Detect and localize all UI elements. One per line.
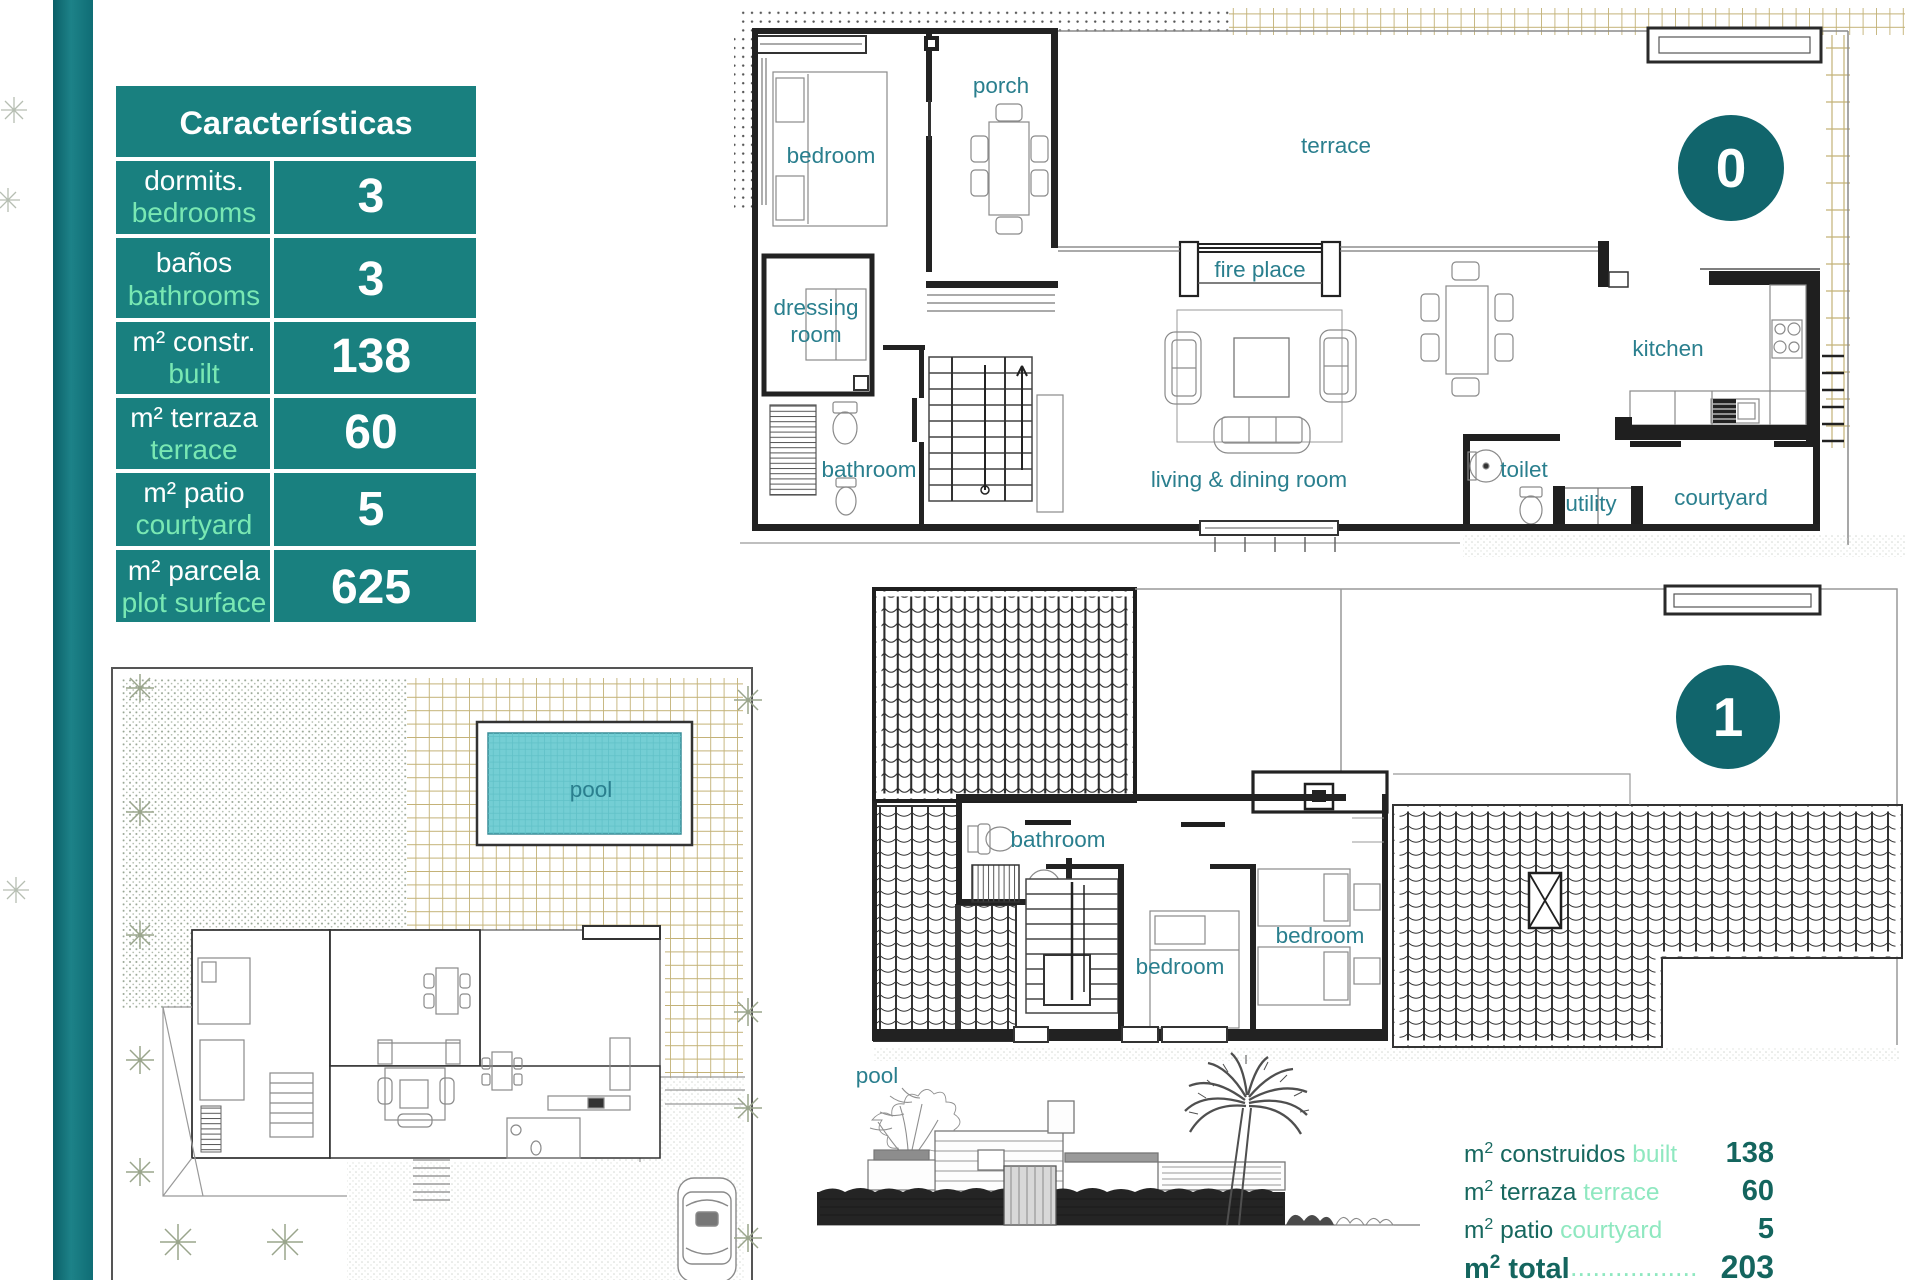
svg-text:fire place: fire place [1214, 257, 1305, 282]
svg-text:courtyard: courtyard [136, 509, 253, 540]
svg-text:m2 total: m2 total [1464, 1252, 1570, 1280]
svg-text:m² patio: m² patio [143, 477, 244, 508]
svg-text:bedroom: bedroom [787, 143, 876, 168]
svg-text:m2 terraza terrace: m2 terraza terrace [1464, 1178, 1659, 1206]
svg-text:m2 construidos built: m2 construidos built [1464, 1140, 1677, 1168]
svg-text:Características: Características [179, 105, 412, 141]
svg-text:138: 138 [1726, 1137, 1774, 1169]
svg-text:203: 203 [1721, 1249, 1774, 1280]
svg-text:5: 5 [1758, 1213, 1774, 1245]
svg-text:utility: utility [1565, 491, 1617, 516]
svg-text:dressing: dressing [773, 295, 858, 320]
svg-text:porch: porch [973, 73, 1029, 98]
svg-text:bedroom: bedroom [1136, 954, 1225, 979]
svg-text:living & dining room: living & dining room [1151, 467, 1347, 492]
svg-text:0: 0 [1716, 137, 1747, 199]
svg-text:toilet: toilet [1500, 457, 1548, 482]
svg-text:terrace: terrace [150, 434, 237, 465]
svg-text:bedroom: bedroom [1276, 923, 1365, 948]
svg-text:m² constr.: m² constr. [133, 326, 256, 357]
svg-text:bathroom: bathroom [821, 457, 916, 482]
svg-text:built: built [168, 358, 220, 389]
svg-text:.................: ................. [1570, 1252, 1698, 1280]
svg-text:3: 3 [358, 253, 385, 306]
svg-text:bathroom: bathroom [1010, 827, 1105, 852]
svg-text:plot surface: plot surface [122, 587, 267, 618]
svg-text:m² terraza: m² terraza [130, 402, 258, 433]
svg-text:60: 60 [344, 406, 397, 459]
svg-text:1: 1 [1713, 686, 1744, 748]
svg-text:kitchen: kitchen [1632, 336, 1703, 361]
svg-text:bathrooms: bathrooms [128, 280, 260, 311]
svg-text:5: 5 [358, 483, 385, 536]
svg-text:138: 138 [331, 330, 411, 383]
svg-text:dormits.: dormits. [144, 165, 244, 196]
svg-text:baños: baños [156, 247, 232, 278]
svg-text:m2 patio courtyard: m2 patio courtyard [1464, 1216, 1662, 1244]
svg-text:3: 3 [358, 170, 385, 223]
svg-text:bedrooms: bedrooms [132, 197, 257, 228]
svg-text:pool: pool [856, 1063, 899, 1088]
svg-text:60: 60 [1742, 1175, 1774, 1207]
svg-text:courtyard: courtyard [1674, 485, 1768, 510]
svg-text:room: room [790, 322, 841, 347]
svg-text:pool: pool [570, 777, 613, 802]
svg-text:terrace: terrace [1301, 133, 1371, 158]
svg-text:m² parcela: m² parcela [128, 555, 261, 586]
svg-text:625: 625 [331, 561, 411, 614]
